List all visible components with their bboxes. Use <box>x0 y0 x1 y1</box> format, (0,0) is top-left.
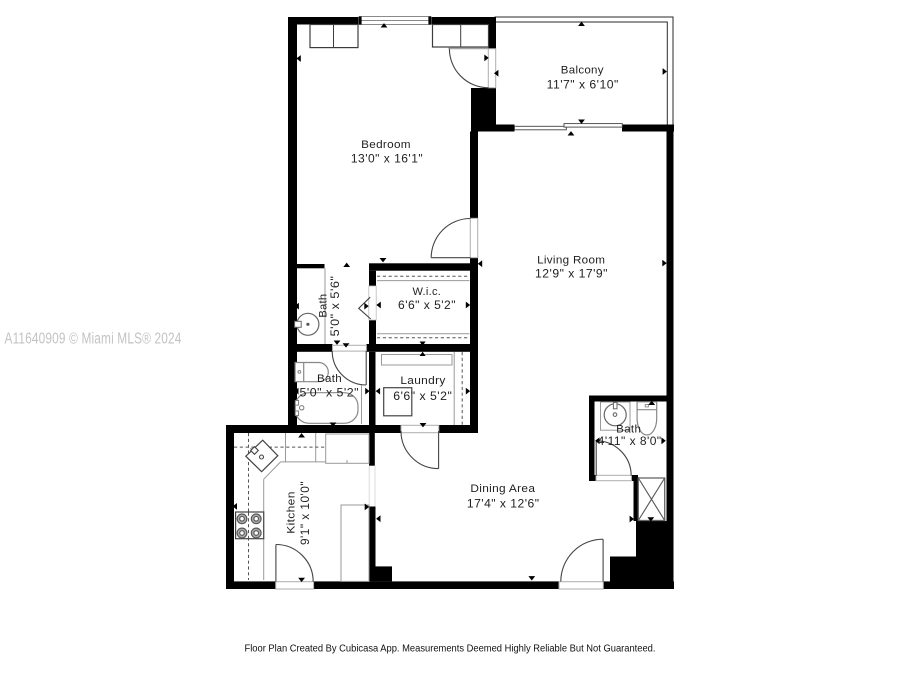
svg-text:12'9" x 17'9": 12'9" x 17'9" <box>535 268 608 280</box>
svg-text:13'0" x 16'1": 13'0" x 16'1" <box>351 154 423 166</box>
svg-text:4'11" x 8'0": 4'11" x 8'0" <box>598 436 662 448</box>
svg-text:5'0" x 5'2": 5'0" x 5'2" <box>300 388 360 400</box>
svg-text:6'6" x 5'2": 6'6" x 5'2" <box>393 391 452 403</box>
svg-text:Bath: Bath <box>318 294 330 318</box>
svg-text:Floor Plan Created By Cubicasa: Floor Plan Created By Cubicasa App. Meas… <box>245 644 656 655</box>
svg-text:Balcony: Balcony <box>561 65 604 77</box>
svg-text:Dining Area: Dining Area <box>470 483 536 495</box>
svg-text:A11640909 © Miami MLS® 2024: A11640909 © Miami MLS® 2024 <box>5 331 182 348</box>
svg-text:Bath: Bath <box>317 373 342 385</box>
svg-text:6'6" x 5'2": 6'6" x 5'2" <box>398 300 456 312</box>
svg-text:5'0" x 5'6": 5'0" x 5'6" <box>330 276 342 337</box>
svg-text:17'4" x 12'6": 17'4" x 12'6" <box>467 498 540 510</box>
svg-text:11'7" x 6'10": 11'7" x 6'10" <box>547 79 619 91</box>
svg-text:Living Room: Living Room <box>537 255 605 267</box>
svg-text:Bath: Bath <box>616 424 641 436</box>
svg-text:W.i.c.: W.i.c. <box>412 286 441 298</box>
svg-text:Kitchen: Kitchen <box>286 491 298 534</box>
svg-text:Bedroom: Bedroom <box>361 139 411 151</box>
svg-text:9'1" x 10'0": 9'1" x 10'0" <box>300 481 312 545</box>
svg-text:Laundry: Laundry <box>400 375 446 387</box>
